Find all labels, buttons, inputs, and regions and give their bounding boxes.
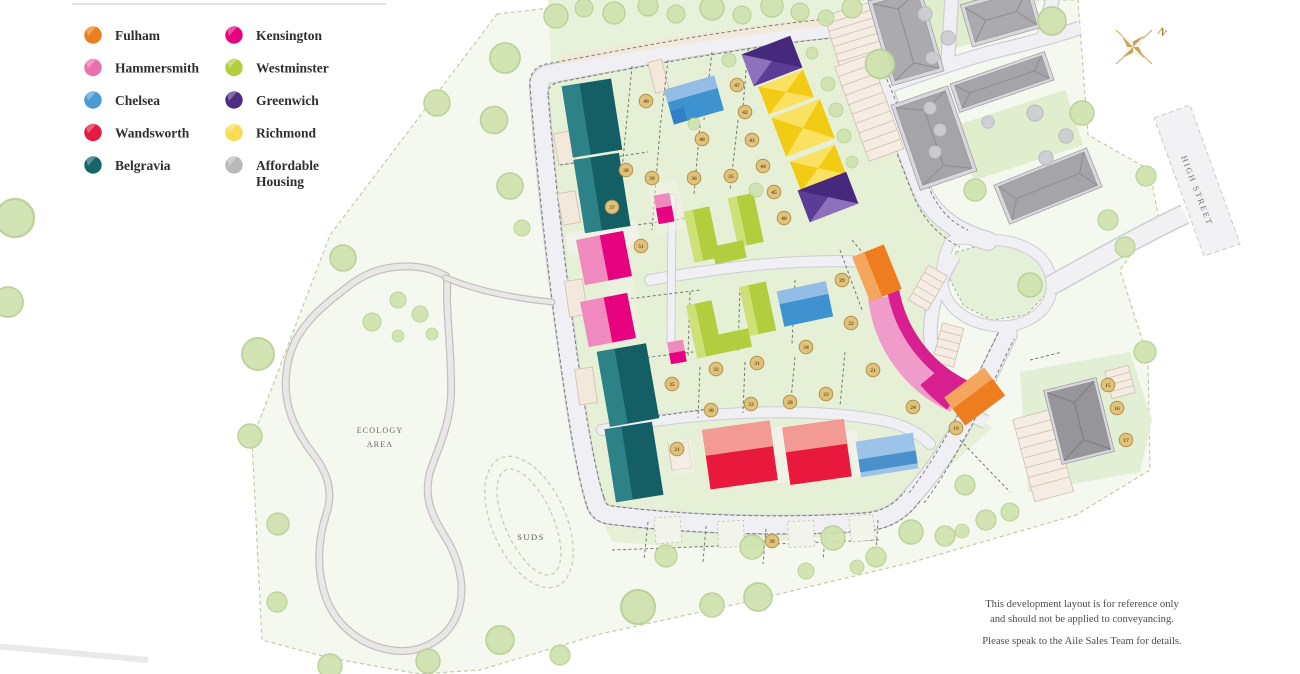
svg-text:21: 21	[870, 368, 876, 374]
svg-text:32: 32	[713, 367, 719, 373]
svg-text:15: 15	[1105, 383, 1111, 389]
svg-text:45: 45	[771, 190, 777, 196]
svg-text:39: 39	[769, 539, 775, 545]
svg-text:40: 40	[699, 137, 705, 143]
svg-text:42: 42	[742, 110, 748, 116]
svg-text:28: 28	[787, 400, 793, 406]
svg-text:Fulham: Fulham	[115, 28, 161, 43]
svg-text:Housing: Housing	[256, 174, 304, 189]
svg-text:35: 35	[728, 174, 734, 180]
svg-text:Chelsea: Chelsea	[115, 93, 160, 108]
svg-text:33: 33	[748, 402, 754, 408]
svg-text:16: 16	[1114, 406, 1120, 412]
svg-text:and should not be applied to c: and should not be applied to conveyancin…	[990, 614, 1174, 625]
svg-text:49: 49	[643, 99, 649, 105]
svg-text:Hammersmith: Hammersmith	[115, 61, 199, 76]
svg-text:Please speak to the Aile Sales: Please speak to the Aile Sales Team for …	[982, 636, 1181, 647]
svg-text:29: 29	[839, 278, 845, 284]
svg-text:38: 38	[623, 168, 629, 174]
svg-text:47: 47	[734, 83, 740, 89]
svg-text:37: 37	[609, 205, 615, 211]
svg-text:39: 39	[649, 176, 655, 182]
svg-text:46: 46	[781, 216, 787, 222]
svg-text:23: 23	[823, 392, 829, 398]
svg-text:ECOLOGY: ECOLOGY	[357, 426, 404, 435]
svg-text:43: 43	[749, 138, 755, 144]
svg-text:51: 51	[638, 244, 644, 250]
svg-text:35: 35	[669, 382, 675, 388]
svg-text:Westminster: Westminster	[256, 61, 329, 76]
svg-text:22: 22	[848, 321, 854, 327]
svg-text:AREA: AREA	[367, 440, 394, 449]
svg-text:This development layout is for: This development layout is for reference…	[985, 599, 1179, 610]
svg-text:19: 19	[953, 426, 959, 432]
svg-text:44: 44	[760, 164, 766, 170]
svg-text:Affordable: Affordable	[256, 158, 319, 173]
svg-text:Wandsworth: Wandsworth	[115, 126, 190, 141]
svg-text:34: 34	[803, 345, 809, 351]
svg-text:Belgravia: Belgravia	[115, 158, 171, 173]
svg-text:31: 31	[754, 361, 760, 367]
svg-text:SUDS: SUDS	[517, 532, 545, 542]
svg-text:21: 21	[674, 447, 680, 453]
svg-text:24: 24	[910, 405, 916, 411]
svg-text:30: 30	[708, 408, 714, 414]
svg-text:36: 36	[691, 176, 697, 182]
svg-text:Kensington: Kensington	[256, 28, 323, 43]
svg-text:17: 17	[1123, 438, 1129, 444]
svg-text:Richmond: Richmond	[256, 126, 317, 141]
svg-text:Greenwich: Greenwich	[256, 93, 319, 108]
